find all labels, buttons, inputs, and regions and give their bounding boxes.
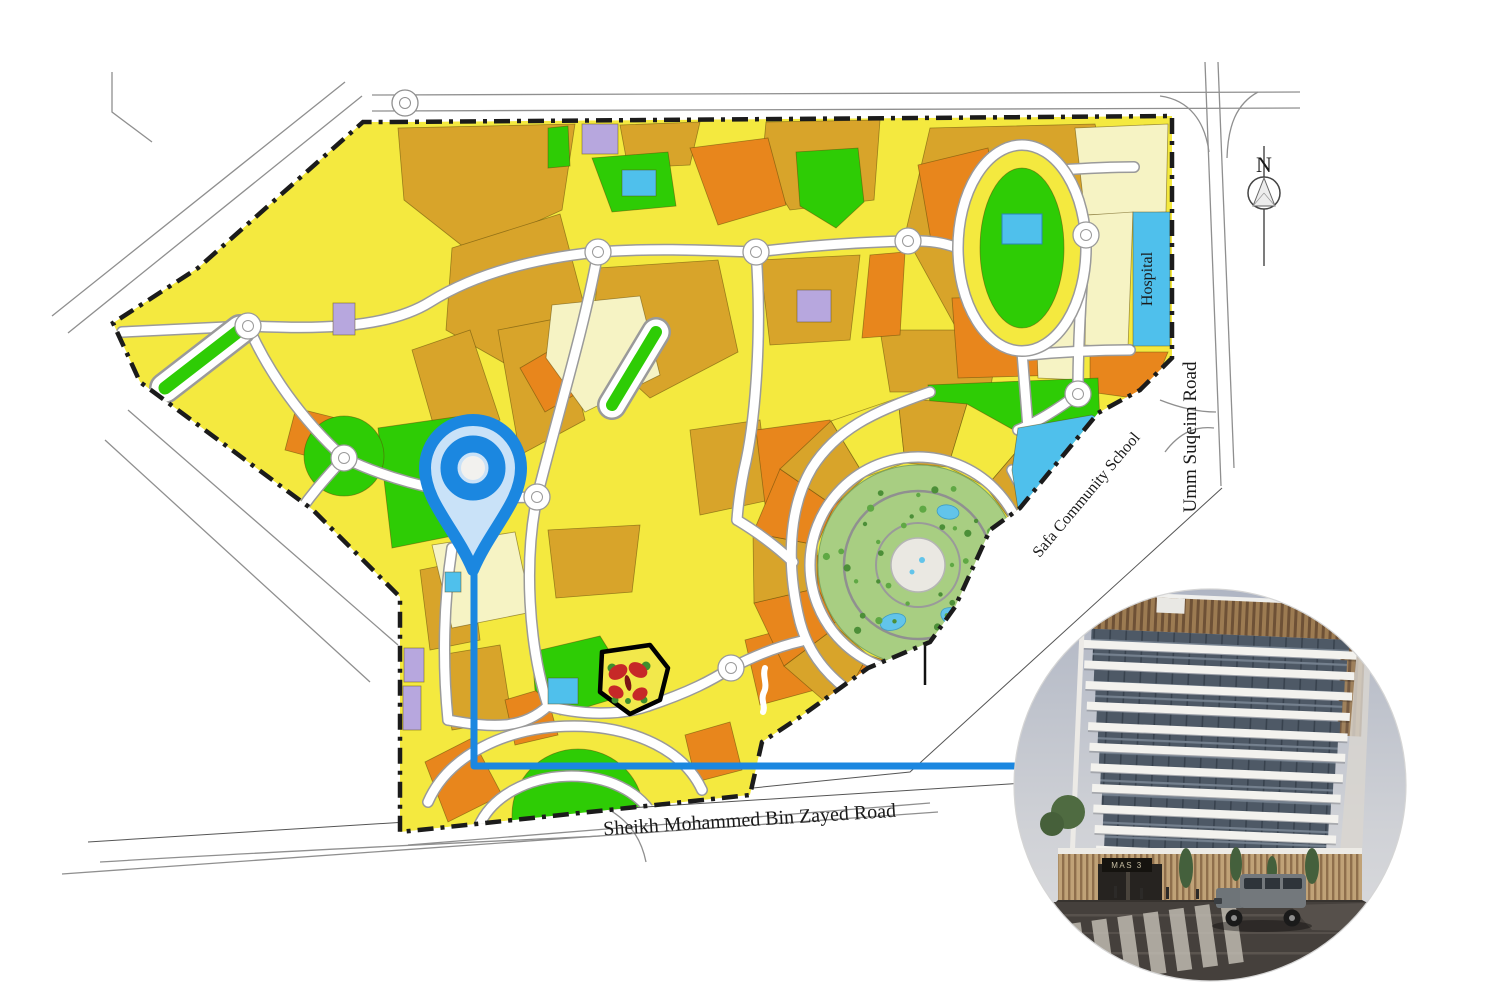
- master-plan-map: Hospital Safa Community School Umm Suqei…: [0, 0, 1500, 1000]
- top-roundabout: [392, 90, 418, 116]
- masterplan-screenshot: Hospital Safa Community School Umm Suqei…: [0, 0, 1500, 1000]
- umm-suqeim-label: Umm Suqeim Road: [1180, 361, 1201, 512]
- white-marker-squiggle: [763, 668, 766, 712]
- stadium-oval: [958, 145, 1086, 351]
- central-park: [810, 457, 1026, 673]
- leafy-tree-2: [1040, 812, 1064, 836]
- compass-north: N: [1248, 146, 1280, 266]
- building-photo-inset: MAS 3: [1014, 589, 1406, 989]
- compass-n-label: N: [1256, 152, 1272, 177]
- building-rendering: [1070, 590, 1373, 867]
- street-foreground: [1014, 900, 1406, 989]
- hospital-label: Hospital: [1139, 251, 1156, 306]
- podium-sign: MAS 3: [1111, 861, 1143, 870]
